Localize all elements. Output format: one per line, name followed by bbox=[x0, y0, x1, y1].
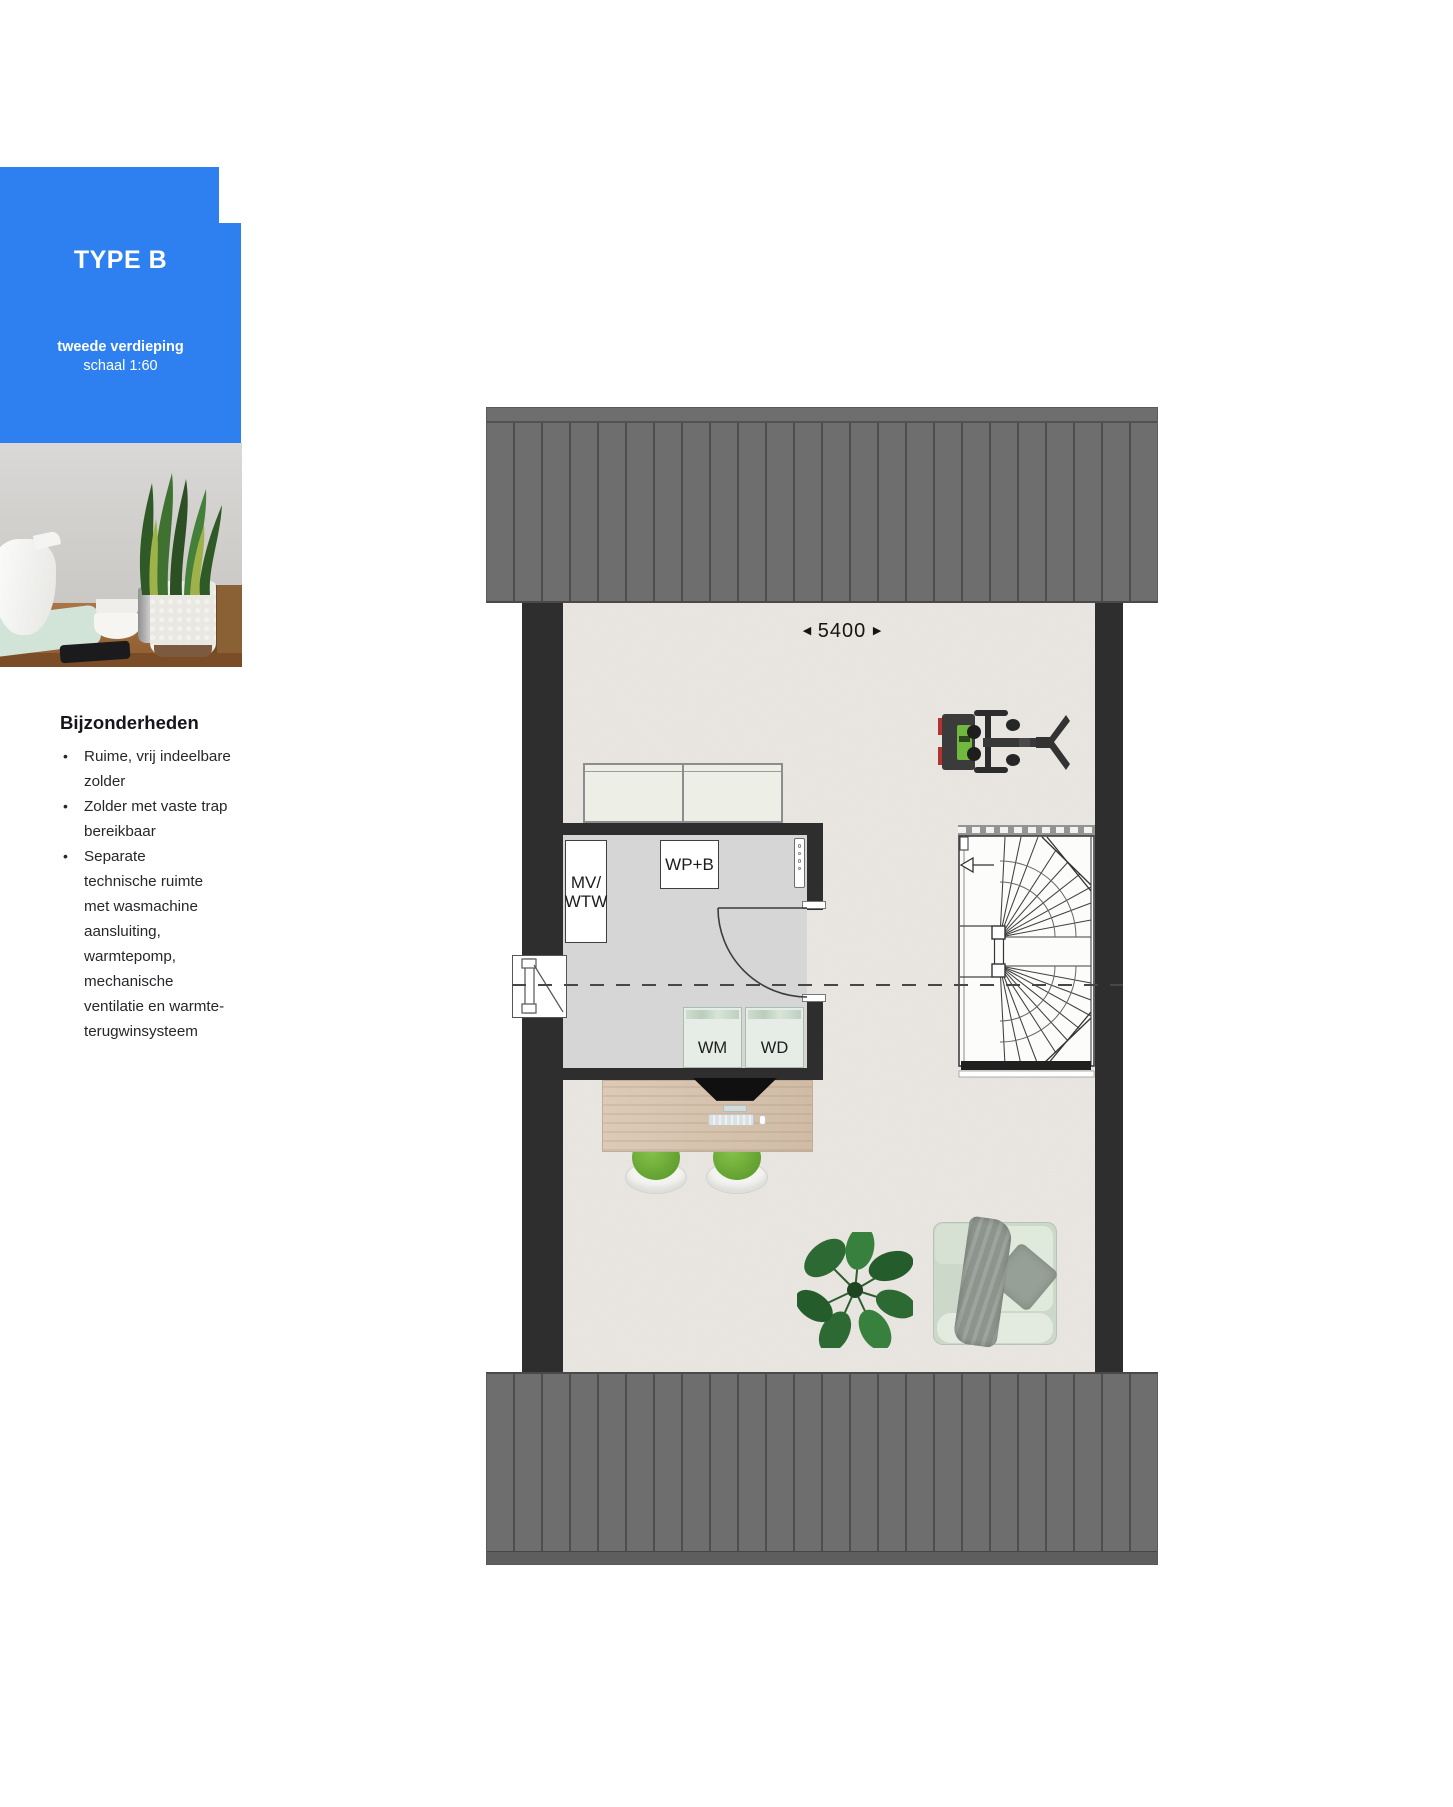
photo-cups bbox=[94, 613, 140, 639]
floor-plan: ◀ 5400 ▶ MV/ WTW WP+B WM WD bbox=[486, 407, 1158, 1565]
dimension-arrow-left-icon: ◀ bbox=[803, 625, 811, 637]
dormer-window bbox=[512, 955, 567, 1018]
ventilation-unit: MV/ WTW bbox=[565, 840, 607, 943]
washing-machine: WM bbox=[683, 1007, 742, 1068]
dimension-label: ◀ 5400 ▶ bbox=[742, 620, 942, 643]
wall-right bbox=[1095, 603, 1123, 1372]
details-heading: Bijzonderheden bbox=[60, 712, 245, 734]
heat-pump-unit: WP+B bbox=[660, 840, 719, 889]
washing-machine-lid bbox=[686, 1010, 739, 1019]
type-title: TYPE B bbox=[0, 246, 241, 275]
details-section: Bijzonderheden Ruime, vrij indeelbare zo… bbox=[57, 712, 245, 1044]
inspiration-photo bbox=[0, 443, 242, 667]
tech-room-wall-right bbox=[807, 823, 823, 910]
roof-bottom-panels bbox=[487, 1374, 1157, 1551]
closet bbox=[583, 763, 783, 823]
detail-item: Separate technische ruimte met wasmachin… bbox=[57, 844, 245, 1044]
roof-bottom-lip bbox=[487, 1551, 1157, 1564]
photo-wood-box bbox=[212, 585, 242, 653]
brochure-page: { "sidebar": { "type_label": "TYPE B", "… bbox=[0, 0, 1453, 1807]
photo-pitcher-spout bbox=[33, 530, 61, 549]
details-list: Ruime, vrij indeelbare zolder Zolder met… bbox=[57, 744, 245, 1044]
dimension-value: 5400 bbox=[818, 620, 867, 642]
monstera-plant bbox=[797, 1232, 913, 1348]
type-card bbox=[0, 167, 241, 443]
roof-bottom bbox=[486, 1372, 1158, 1565]
exercise-bike bbox=[938, 708, 1070, 777]
dryer: WD bbox=[745, 1007, 804, 1068]
section-line bbox=[512, 984, 1123, 986]
floor-sublabel: tweede verdieping bbox=[0, 339, 241, 355]
tech-room-wall-bottom bbox=[522, 1068, 823, 1080]
armchair bbox=[933, 1222, 1057, 1345]
roof-top bbox=[486, 407, 1158, 603]
closet-door bbox=[585, 765, 684, 821]
washing-machine-label: WM bbox=[684, 1039, 741, 1058]
staircase bbox=[958, 825, 1095, 1078]
detail-item: Ruime, vrij indeelbare zolder bbox=[57, 744, 245, 794]
photo-plant-pot-rim bbox=[154, 645, 212, 657]
dimension-arrow-right-icon: ▶ bbox=[873, 625, 881, 637]
tech-room-door bbox=[716, 902, 812, 1004]
photo-snake-plant bbox=[122, 469, 232, 595]
closet-door bbox=[684, 765, 781, 821]
monitor-stand bbox=[723, 1105, 747, 1112]
detail-item: Zolder met vaste trap bereikbaar bbox=[57, 794, 245, 844]
mouse bbox=[759, 1115, 766, 1125]
tech-room-wall-top bbox=[522, 823, 823, 835]
dryer-label: WD bbox=[746, 1039, 803, 1058]
scale-label: schaal 1:60 bbox=[0, 358, 241, 374]
wall-fixture bbox=[794, 838, 805, 888]
dryer-lid bbox=[748, 1010, 801, 1019]
roof-top-panels bbox=[487, 421, 1157, 601]
tech-room-wall-right bbox=[807, 1000, 823, 1080]
keyboard bbox=[708, 1114, 754, 1126]
type-card-notch bbox=[219, 167, 241, 223]
